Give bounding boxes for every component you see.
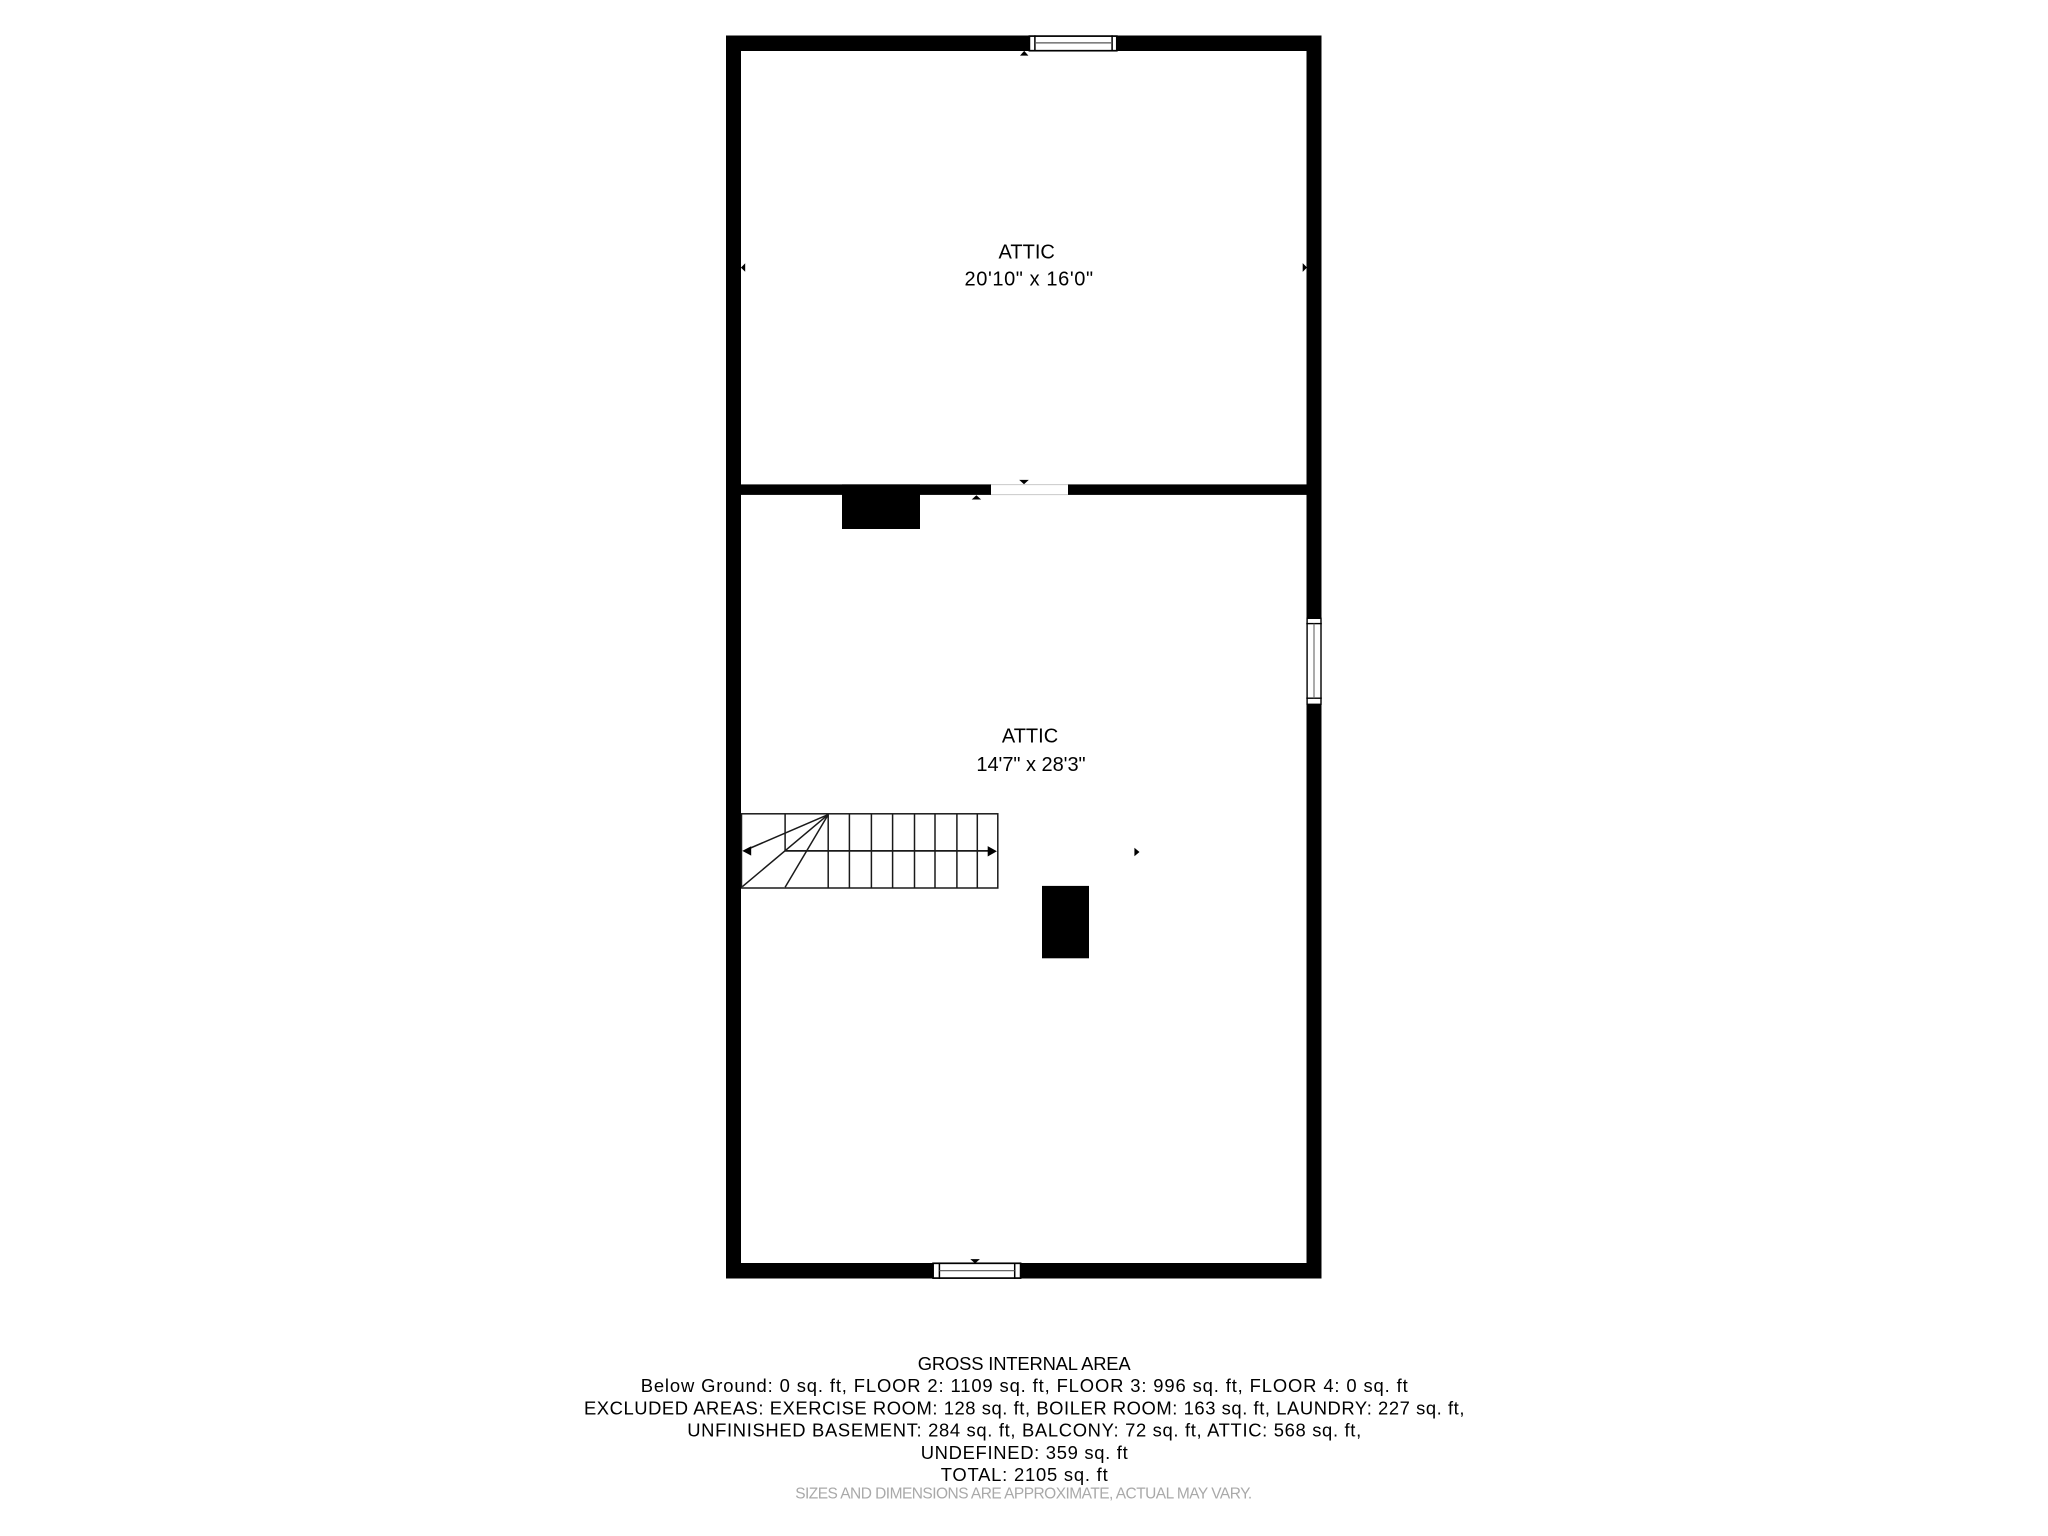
svg-text:GROSS INTERNAL AREA: GROSS INTERNAL AREA (918, 1353, 1132, 1374)
svg-text:20'10" x 16'0": 20'10" x 16'0" (965, 268, 1094, 290)
svg-text:Below Ground: 0 sq. ft, FLOOR: Below Ground: 0 sq. ft, FLOOR 2: 1109 sq… (641, 1375, 1408, 1396)
svg-text:ATTIC: ATTIC (1002, 726, 1058, 748)
svg-text:UNDEFINED: 359 sq. ft: UNDEFINED: 359 sq. ft (921, 1442, 1128, 1463)
svg-text:EXCLUDED AREAS: EXERCISE ROOM:: EXCLUDED AREAS: EXERCISE ROOM: 128 sq. f… (584, 1397, 1465, 1418)
svg-text:SIZES AND DIMENSIONS ARE APPRO: SIZES AND DIMENSIONS ARE APPROXIMATE, AC… (795, 1486, 1252, 1503)
svg-text:ATTIC: ATTIC (999, 242, 1055, 264)
svg-text:UNFINISHED BASEMENT: 284 sq. f: UNFINISHED BASEMENT: 284 sq. ft, BALCONY… (687, 1420, 1361, 1441)
svg-text:TOTAL: 2105 sq. ft: TOTAL: 2105 sq. ft (941, 1464, 1108, 1485)
svg-text:14'7" x 28'3": 14'7" x 28'3" (976, 754, 1085, 776)
